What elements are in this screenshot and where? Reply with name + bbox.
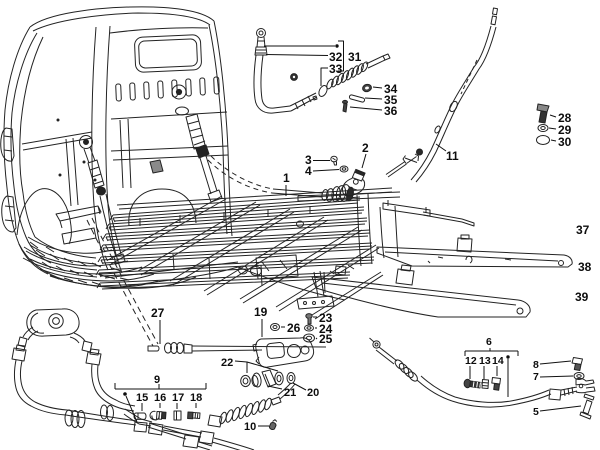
svg-text:13: 13 [479,355,491,367]
svg-text:33: 33 [329,62,343,76]
svg-text:38: 38 [578,260,592,274]
svg-text:17: 17 [172,392,184,404]
svg-text:27: 27 [151,306,165,320]
svg-text:21: 21 [284,387,296,399]
svg-text:36: 36 [384,104,398,118]
svg-text:18: 18 [190,392,202,404]
svg-text:7: 7 [533,371,539,383]
svg-text:39: 39 [575,290,589,304]
svg-text:15: 15 [136,392,148,404]
svg-text:11: 11 [446,149,459,163]
svg-text:19: 19 [254,305,268,319]
svg-text:2: 2 [362,141,369,155]
svg-text:1: 1 [283,171,290,185]
svg-text:37: 37 [576,223,590,237]
svg-text:25: 25 [319,332,333,346]
svg-text:20: 20 [307,387,319,399]
svg-text:10: 10 [244,421,256,433]
svg-text:16: 16 [154,392,166,404]
svg-text:22: 22 [221,357,233,369]
svg-text:8: 8 [533,359,539,371]
svg-text:30: 30 [558,135,572,149]
svg-text:26: 26 [287,321,301,335]
svg-text:12: 12 [465,355,477,367]
svg-text:14: 14 [492,355,504,367]
svg-text:6: 6 [486,336,492,348]
svg-text:31: 31 [348,50,362,64]
svg-text:4: 4 [305,164,312,178]
svg-text:5: 5 [533,406,539,418]
